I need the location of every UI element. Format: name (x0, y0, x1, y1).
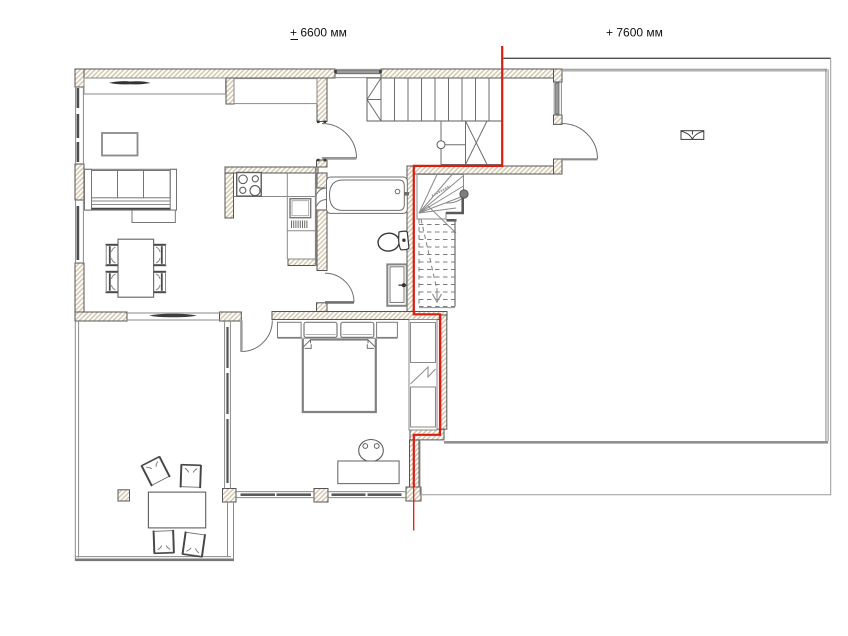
svg-text:+ 6600 мм: + 6600 мм (290, 26, 347, 40)
svg-text:+ 7600 мм: + 7600 мм (606, 26, 663, 40)
